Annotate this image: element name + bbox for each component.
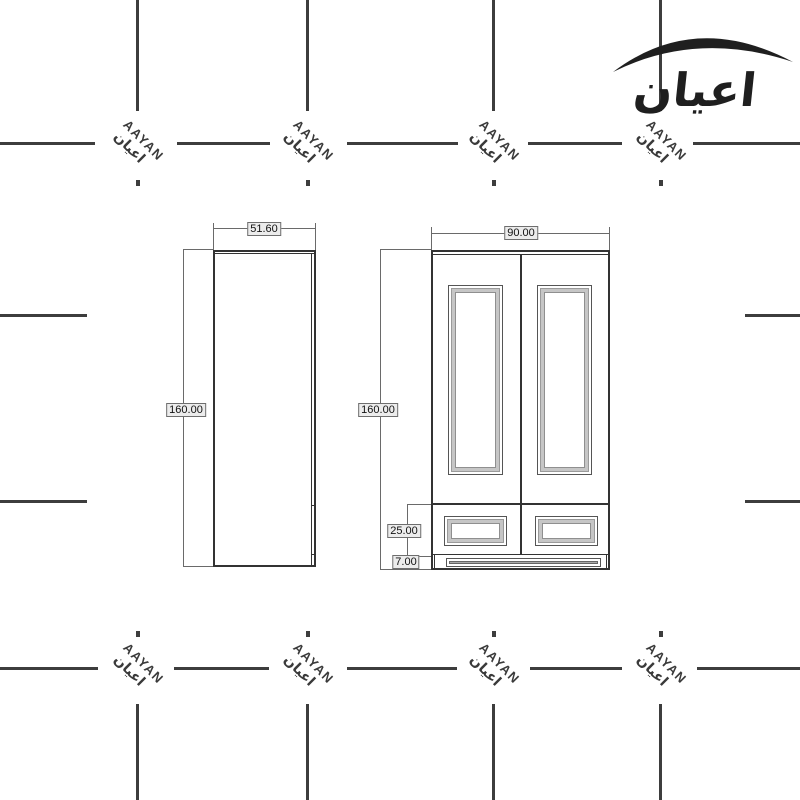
registration-dash [492,631,496,637]
watermark-arabic: اعيان [110,652,148,690]
watermark-arabic: اعيان [280,652,318,690]
registration-mark [530,667,622,670]
watermark: AAYAN اعيان [279,640,337,698]
registration-mark [0,142,95,145]
registration-dash [136,631,140,637]
watermark: AAYAN اعيان [279,117,337,175]
registration-dash [136,180,140,186]
right-drawer-front [535,516,598,546]
registration-mark [347,142,458,145]
registration-mark [306,704,309,800]
registration-dash [306,631,310,637]
drawer-dim-connector [407,504,431,505]
drawer-height-label: 25.00 [387,524,421,538]
watermark: AAYAN اعيان [465,640,523,698]
side-width-label: 51.60 [247,222,281,236]
registration-mark [347,667,457,670]
watermark: AAYAN اعيان [632,640,690,698]
plinth-height-label: 7.00 [392,555,419,569]
watermark-latin: AAYAN [290,640,337,687]
plinth-dim-connector [418,556,431,557]
side-width-ext-left [213,223,214,250]
front-view-drawer-divider [433,503,608,505]
watermark-latin: AAYAN [290,117,337,164]
watermark-latin: AAYAN [120,640,167,687]
registration-mark [745,314,800,317]
side-height-connector-bottom [183,566,213,567]
registration-dash [659,180,663,186]
watermark-arabic: اعيان [280,129,318,167]
watermark-latin: AAYAN [643,117,690,164]
registration-mark [136,0,139,111]
registration-mark [0,667,98,670]
front-height-connector-top [380,249,431,250]
watermark: AAYAN اعيان [465,117,523,175]
watermark-arabic: اعيان [633,129,671,167]
watermark: AAYAN اعيان [109,640,167,698]
registration-mark [528,142,622,145]
front-width-label: 90.00 [504,226,538,240]
registration-mark [136,704,139,800]
watermark-latin: AAYAN [476,117,523,164]
panel-center [542,523,591,539]
right-door-panel [537,285,592,475]
registration-mark [492,704,495,800]
registration-dash [306,180,310,186]
left-door-panel [448,285,503,475]
side-view-top-edge [214,253,315,254]
front-view-door-divider [520,254,522,554]
registration-mark [659,704,662,800]
registration-mark [0,314,87,317]
registration-mark [697,667,800,670]
side-view-plinth-step [311,554,316,555]
registration-mark [306,0,309,111]
side-height-label: 160.00 [166,403,206,417]
front-view-plinth-line [433,554,608,555]
aayan-logo: اعيان [603,14,799,116]
watermark-arabic: اعيان [466,129,504,167]
watermark: AAYAN اعيان [632,117,690,175]
watermark-latin: AAYAN [476,640,523,687]
left-drawer-front [444,516,507,546]
registration-dash [492,180,496,186]
registration-mark [0,500,87,503]
front-view-plinth-inset-right [606,554,607,569]
watermark-arabic: اعيان [633,652,671,690]
side-height-connector-top [183,249,213,250]
side-view-drawer-tick [311,505,316,506]
registration-mark [693,142,800,145]
panel-center [451,523,500,539]
front-height-label: 160.00 [358,403,398,417]
registration-dash [659,631,663,637]
registration-mark [174,667,269,670]
watermark-arabic: اعيان [110,129,148,167]
front-width-ext-left [431,227,432,250]
watermark-arabic: اعيان [466,652,504,690]
panel-center [544,292,585,468]
panel-center [455,292,496,468]
plinth-groove-inner [449,561,598,564]
registration-mark [745,500,800,503]
registration-mark [177,142,270,145]
watermark-latin: AAYAN [643,640,690,687]
front-view-plinth-inset-left [434,554,435,569]
logo-arabic-text: اعيان [631,63,759,116]
side-width-ext-right [315,223,316,250]
side-view-door-edge [311,253,312,566]
watermark-latin: AAYAN [120,117,167,164]
front-height-connector-bottom [380,569,431,570]
technical-drawing-sheet: AAYAN اعيان AAYAN اعيان AAYAN اعيان AAYA… [0,0,800,800]
front-width-ext-right [609,227,610,250]
plinth-groove [446,558,601,567]
side-view-outline [213,250,316,567]
registration-mark [492,0,495,111]
watermark: AAYAN اعيان [109,117,167,175]
